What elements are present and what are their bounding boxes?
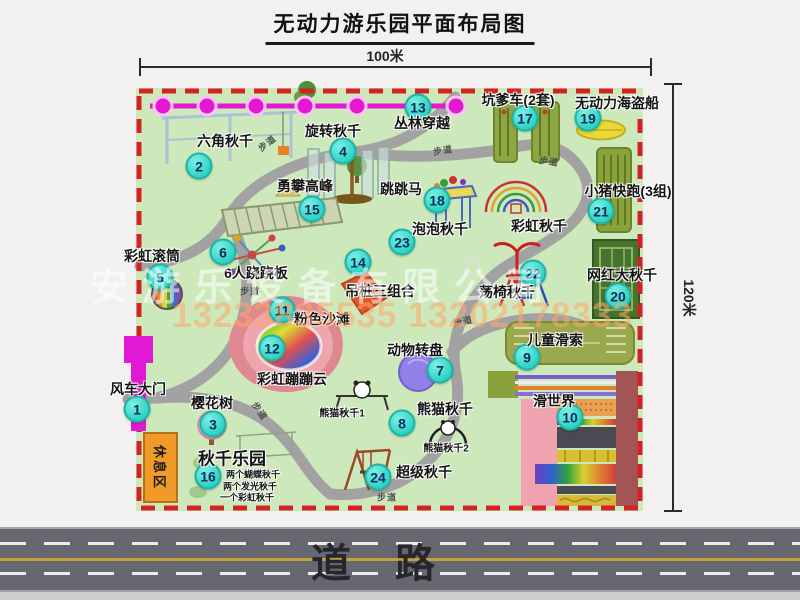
poi-label-9: 儿童滑索 <box>527 330 583 350</box>
rest-area-label: 休息区 <box>151 445 170 490</box>
poi-label-16: 秋千乐园 <box>198 445 266 470</box>
poi-label-15: 勇攀高峰 <box>277 176 333 196</box>
poi-label-12: 彩虹蹦蹦云 <box>257 369 327 389</box>
trail-label: 步道 <box>377 491 397 504</box>
poi-label-1: 风车大门 <box>110 379 166 399</box>
poi-label-17: 坑爹车(2套) <box>481 90 554 110</box>
poi-marker-18[interactable]: 18 <box>424 187 451 214</box>
dimension-top-label: 100米 <box>362 46 407 66</box>
dimension-right-tick-bottom <box>664 510 682 512</box>
poi-marker-1[interactable]: 1 <box>124 396 151 423</box>
extra-label: 彩虹秋千 <box>511 216 567 236</box>
extra-label: 熊猫秋千1 <box>319 405 365 420</box>
poi-marker-21[interactable]: 21 <box>588 198 615 225</box>
poi-label-22: 荡椅秋千 <box>479 282 535 302</box>
road: 道路 <box>0 527 800 592</box>
dimension-top-tick-left <box>139 58 141 76</box>
poi-marker-5[interactable]: 5 <box>147 264 174 291</box>
road-label: 道路 <box>311 531 479 589</box>
poi-label-10: 滑世界 <box>533 391 575 411</box>
poi-label-13: 丛林穿越 <box>394 113 450 133</box>
poi-marker-6[interactable]: 6 <box>210 239 237 266</box>
poi-label-11: 粉色沙滩 <box>294 309 350 329</box>
poi-label-5: 彩虹滚筒 <box>124 246 180 266</box>
poi-label-3: 樱花树 <box>191 393 233 413</box>
poi-label-8: 熊猫秋千 <box>417 399 473 419</box>
poi-marker-12[interactable]: 12 <box>259 335 286 362</box>
sidewalk-strip <box>0 592 800 600</box>
poi-label-19: 无动力海盗船 <box>575 93 659 113</box>
poi-marker-15[interactable]: 15 <box>299 196 326 223</box>
poi-marker-14[interactable]: 14 <box>345 249 372 276</box>
poi-marker-11[interactable]: 11 <box>269 297 296 324</box>
dimension-right-label: 120米 <box>679 275 699 320</box>
poi-label-4: 旋转秋千 <box>305 121 361 141</box>
poi-label-23: 泡泡秋千 <box>412 219 468 239</box>
poi-label-2: 六角秋千 <box>197 131 253 151</box>
trail-label: 步道 <box>538 153 560 169</box>
poi-marker-8[interactable]: 8 <box>389 410 416 437</box>
dimension-right-line <box>672 84 674 512</box>
poi-marker-20[interactable]: 20 <box>605 283 632 310</box>
page-title: 无动力游乐园平面布局图 <box>266 8 535 45</box>
dimension-right-tick-top <box>664 83 682 85</box>
trail-label: 步道 <box>240 285 260 298</box>
poi-label-6: 6人跷跷板 <box>224 263 288 283</box>
screenshot-root: 无动力游乐园平面布局图 100米 120米 <box>0 0 800 600</box>
poi-marker-2[interactable]: 2 <box>186 153 213 180</box>
poi-label-18: 跳跳马 <box>380 179 422 199</box>
poi-label-14: 吊桩三组合 <box>345 281 415 301</box>
poi-marker-4[interactable]: 4 <box>330 138 357 165</box>
poi-marker-24[interactable]: 24 <box>365 464 392 491</box>
extra-label: 熊猫秋千2 <box>423 440 469 455</box>
dimension-top-line <box>140 66 652 68</box>
dimension-top-tick-right <box>650 58 652 76</box>
rest-area: 休息区 <box>143 432 178 503</box>
poi-label-20: 网红大秋千 <box>587 265 657 285</box>
poi-marker-7[interactable]: 7 <box>427 357 454 384</box>
poi-label-7: 动物转盘 <box>387 340 443 360</box>
extra-label: 一个彩虹秋千 <box>220 491 274 504</box>
poi-marker-3[interactable]: 3 <box>200 411 227 438</box>
poi-label-21: 小猪快跑(3组) <box>584 181 671 201</box>
poi-label-24: 超级秋千 <box>396 462 452 482</box>
